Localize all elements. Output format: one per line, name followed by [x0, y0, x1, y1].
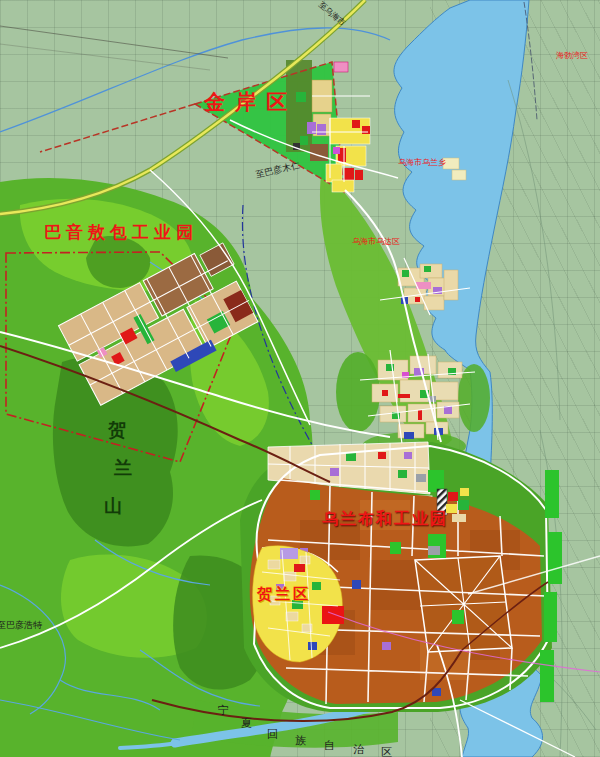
wulanbuhe-zone-area — [240, 442, 562, 712]
map-graphics — [0, 0, 600, 757]
jinan-olive-band — [286, 60, 312, 152]
planning-map: 金岸区巴音敖包工业园乌兰布和工业园贺兰区乌海市乌兰乡乌海市乌达区海勃湾区至巴彦木… — [0, 0, 600, 757]
jinan-district-area — [40, 60, 344, 192]
